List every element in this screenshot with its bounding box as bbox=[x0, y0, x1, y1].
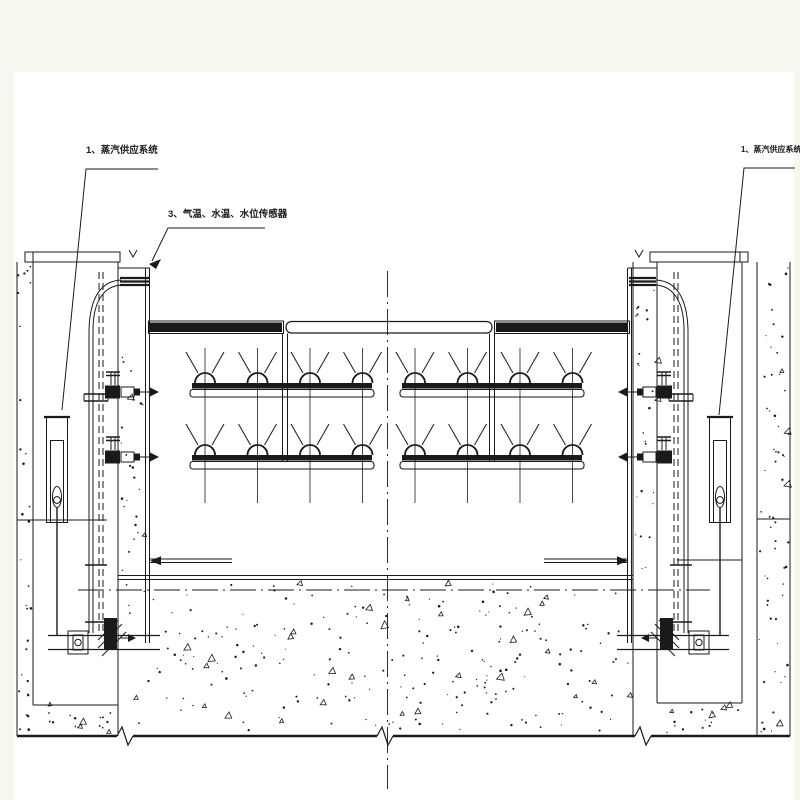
stipple-dot bbox=[766, 408, 768, 410]
stipple-dot bbox=[423, 642, 424, 643]
stipple-dot bbox=[760, 511, 762, 513]
stipple-dot bbox=[126, 500, 127, 501]
steam-pipe bbox=[402, 455, 582, 461]
stipple-dot bbox=[133, 476, 135, 478]
stipple-dot bbox=[27, 640, 29, 642]
stipple-dot bbox=[635, 315, 637, 317]
stipple-dot bbox=[382, 670, 384, 672]
stipple-dot bbox=[295, 696, 297, 698]
stipple-dot bbox=[490, 701, 492, 703]
stipple-dot bbox=[246, 695, 247, 696]
stipple-dot bbox=[486, 675, 487, 676]
stipple-dot bbox=[567, 683, 569, 685]
stipple-dot bbox=[139, 489, 140, 490]
stipple-dot bbox=[559, 653, 561, 655]
stipple-dot bbox=[461, 704, 463, 706]
stipple-dot bbox=[764, 575, 765, 576]
stipple-dot bbox=[402, 655, 404, 657]
stipple-dot bbox=[132, 466, 135, 469]
stipple-dot bbox=[786, 664, 789, 667]
stipple-dot bbox=[499, 625, 501, 627]
stipple-dot bbox=[230, 584, 232, 586]
stipple-dot bbox=[69, 715, 71, 717]
stipple-dot bbox=[192, 705, 194, 707]
stipple-dot bbox=[635, 534, 636, 535]
stipple-dot bbox=[130, 370, 132, 372]
stipple-dot bbox=[122, 570, 123, 571]
stipple-dot bbox=[102, 716, 104, 718]
stipple-dot bbox=[773, 449, 774, 450]
stipple-dot bbox=[48, 712, 50, 714]
stipple-dot bbox=[486, 692, 487, 693]
stipple-dot bbox=[495, 693, 497, 695]
stipple-dot bbox=[19, 448, 21, 450]
stipple-dot bbox=[766, 335, 767, 336]
stipple-dot bbox=[234, 656, 236, 658]
stipple-dot bbox=[776, 352, 778, 354]
stipple-dot bbox=[702, 727, 704, 729]
stipple-dot bbox=[284, 628, 286, 630]
drawing-canvas: 1、蒸汽供应系统 3、气温、水温、水位传感器 1、蒸汽供应系统 bbox=[0, 0, 800, 800]
stipple-dot bbox=[74, 717, 76, 719]
stipple-dot bbox=[26, 605, 27, 606]
stipple-dot bbox=[507, 592, 509, 594]
stipple-dot bbox=[612, 661, 614, 663]
stipple-dot bbox=[774, 671, 775, 672]
stipple-dot bbox=[426, 635, 428, 637]
stipple-dot bbox=[157, 668, 158, 669]
stipple-dot bbox=[782, 454, 784, 456]
stipple-dot bbox=[779, 374, 780, 375]
stipple-dot bbox=[185, 663, 187, 665]
stipple-dot bbox=[514, 661, 516, 663]
stipple-dot bbox=[787, 541, 789, 543]
stipple-dot bbox=[637, 306, 639, 308]
stipple-dot bbox=[775, 451, 777, 453]
stipple-dot bbox=[618, 630, 620, 632]
stipple-dot bbox=[512, 688, 514, 690]
stipple-dot bbox=[391, 659, 393, 661]
stipple-dot bbox=[193, 656, 194, 657]
stipple-dot bbox=[121, 427, 123, 429]
stipple-dot bbox=[505, 691, 507, 693]
stipple-dot bbox=[25, 648, 27, 650]
stipple-dot bbox=[773, 323, 775, 325]
stipple-dot bbox=[778, 426, 779, 427]
stipple-dot bbox=[415, 719, 417, 721]
stipple-dot bbox=[627, 662, 628, 663]
stipple-dot bbox=[559, 663, 562, 666]
stipple-dot bbox=[457, 625, 460, 628]
stipple-dot bbox=[235, 628, 236, 629]
stipple-dot bbox=[782, 595, 783, 596]
stipple-dot bbox=[26, 608, 28, 610]
hose-nut bbox=[134, 454, 140, 461]
stipple-dot bbox=[406, 596, 408, 598]
stipple-dot bbox=[770, 526, 772, 528]
stipple-dot bbox=[132, 399, 134, 401]
stipple-dot bbox=[531, 616, 533, 618]
stipple-dot bbox=[18, 690, 20, 692]
stipple-dot bbox=[256, 624, 258, 626]
stipple-dot bbox=[611, 694, 613, 696]
stipple-dot bbox=[558, 713, 560, 715]
stipple-dot bbox=[521, 719, 523, 721]
stipple-dot bbox=[787, 433, 789, 435]
stipple-dot bbox=[30, 607, 33, 610]
stipple-dot bbox=[406, 697, 408, 699]
stipple-dot bbox=[192, 668, 194, 670]
stipple-dot bbox=[75, 726, 77, 728]
stipple-dot bbox=[385, 615, 387, 617]
label-sensors: 3、气温、水温、水位传感器 bbox=[168, 208, 288, 220]
stipple-dot bbox=[545, 639, 547, 641]
stipple-dot bbox=[524, 676, 525, 677]
stipple-dot bbox=[351, 682, 352, 683]
stipple-dot bbox=[99, 725, 101, 727]
stipple-dot bbox=[27, 694, 29, 696]
stipple-dot bbox=[362, 607, 364, 609]
stipple-dot bbox=[522, 631, 523, 632]
stipple-dot bbox=[509, 612, 511, 614]
stipple-dot bbox=[285, 649, 286, 650]
stipple-dot bbox=[283, 659, 284, 660]
stipple-dot bbox=[485, 614, 486, 615]
stipple-dot bbox=[759, 639, 760, 640]
steam-pipe bbox=[192, 383, 372, 389]
stipple-dot bbox=[412, 687, 414, 689]
stipple-dot bbox=[674, 725, 676, 727]
stipple-dot bbox=[775, 540, 777, 542]
stipple-dot bbox=[516, 657, 518, 659]
stipple-dot bbox=[607, 632, 609, 634]
stipple-dot bbox=[418, 630, 420, 632]
stipple-dot bbox=[437, 659, 439, 661]
stipple-dot bbox=[682, 728, 684, 730]
stipple-dot bbox=[648, 407, 651, 410]
stipple-dot bbox=[454, 627, 455, 628]
stipple-dot bbox=[459, 729, 460, 730]
stipple-dot bbox=[711, 722, 713, 724]
stipple-dot bbox=[328, 628, 330, 630]
stipple-dot bbox=[122, 357, 124, 359]
stipple-dot bbox=[492, 591, 495, 594]
stipple-dot bbox=[636, 496, 637, 497]
stipple-dot bbox=[27, 728, 30, 731]
stipple-dot bbox=[519, 653, 521, 655]
stipple-dot bbox=[243, 692, 245, 694]
stipple-dot bbox=[484, 661, 485, 662]
stipple-dot bbox=[636, 308, 638, 310]
stipple-dot bbox=[770, 284, 772, 286]
stipple-dot bbox=[505, 669, 508, 672]
stipple-dot bbox=[769, 410, 770, 411]
stipple-dot bbox=[516, 607, 517, 608]
stipple-dot bbox=[28, 521, 29, 522]
stipple-dot bbox=[351, 586, 352, 587]
hose-nut bbox=[637, 389, 643, 396]
stipple-dot bbox=[279, 663, 281, 665]
stipple-dot bbox=[653, 290, 654, 291]
stipple-dot bbox=[526, 629, 528, 631]
stipple-dot bbox=[701, 709, 703, 711]
stipple-dot bbox=[348, 652, 350, 654]
stipple-dot bbox=[777, 643, 778, 644]
stipple-dot bbox=[482, 659, 484, 661]
stipple-dot bbox=[354, 697, 355, 698]
stipple-dot bbox=[28, 585, 30, 587]
stipple-dot bbox=[570, 669, 572, 671]
stipple-dot bbox=[429, 599, 430, 600]
stipple-dot bbox=[569, 648, 571, 650]
stipple-dot bbox=[774, 415, 777, 418]
stipple-dot bbox=[329, 658, 331, 660]
stipple-dot bbox=[510, 724, 512, 726]
stipple-dot bbox=[771, 374, 773, 376]
stipple-dot bbox=[615, 658, 617, 660]
label-steam-supply-left: 1、蒸汽供应系统 bbox=[86, 144, 158, 156]
stipple-dot bbox=[585, 628, 587, 630]
stipple-dot bbox=[712, 712, 714, 714]
stipple-dot bbox=[317, 697, 319, 699]
stipple-dot bbox=[242, 651, 244, 653]
stipple-dot bbox=[646, 318, 648, 320]
stipple-dot bbox=[388, 723, 390, 725]
stipple-dot bbox=[221, 671, 223, 673]
stipple-dot bbox=[399, 727, 401, 729]
stipple-dot bbox=[766, 604, 768, 606]
stipple-dot bbox=[492, 584, 493, 585]
stipple-dot bbox=[455, 632, 457, 634]
stipple-dot bbox=[243, 721, 245, 723]
stipple-dot bbox=[339, 637, 341, 639]
stipple-dot bbox=[649, 536, 651, 538]
stipple-dot bbox=[215, 633, 217, 635]
stipple-dot bbox=[102, 727, 104, 729]
stipple-dot bbox=[442, 723, 443, 724]
stipple-dot bbox=[479, 610, 480, 611]
stipple-dot bbox=[20, 559, 21, 560]
stipple-dot bbox=[30, 282, 32, 284]
engineering-drawing: 1、蒸汽供应系统 3、气温、水温、水位传感器 1、蒸汽供应系统 bbox=[0, 0, 800, 800]
stipple-dot bbox=[21, 513, 24, 516]
stipple-dot bbox=[23, 272, 25, 274]
hose-nut bbox=[134, 389, 140, 396]
stipple-dot bbox=[194, 637, 196, 639]
stipple-dot bbox=[437, 655, 438, 656]
stipple-dot bbox=[331, 723, 333, 725]
stipple-dot bbox=[780, 682, 781, 683]
stipple-dot bbox=[339, 648, 341, 650]
stipple-dot bbox=[775, 461, 777, 463]
stipple-dot bbox=[641, 568, 642, 569]
stipple-dot bbox=[147, 680, 149, 682]
stipple-dot bbox=[615, 592, 617, 594]
stipple-dot bbox=[19, 728, 21, 730]
stipple-dot bbox=[486, 713, 488, 715]
stipple-dot bbox=[254, 625, 256, 627]
stipple-dot bbox=[106, 721, 108, 723]
stipple-dot bbox=[109, 712, 111, 714]
stipple-dot bbox=[580, 650, 582, 652]
stipple-dot bbox=[784, 390, 786, 392]
stipple-dot bbox=[242, 614, 243, 615]
stipple-dot bbox=[375, 725, 376, 726]
stipple-dot bbox=[447, 694, 448, 695]
stipple-dot bbox=[540, 726, 542, 728]
stipple-dot bbox=[530, 586, 532, 588]
stipple-dot bbox=[19, 326, 21, 328]
stipple-dot bbox=[255, 664, 257, 666]
stipple-dot bbox=[637, 363, 639, 365]
stipple-dot bbox=[438, 605, 441, 608]
stipple-dot bbox=[345, 696, 347, 698]
stipple-dot bbox=[777, 451, 779, 453]
stipple-dot bbox=[652, 390, 654, 392]
stipple-dot bbox=[781, 479, 783, 481]
stipple-dot bbox=[180, 659, 182, 661]
stipple-dot bbox=[484, 686, 486, 688]
stipple-dot bbox=[645, 443, 647, 445]
stipple-dot bbox=[760, 731, 761, 732]
stipple-dot bbox=[327, 683, 329, 685]
stipple-dot bbox=[562, 713, 563, 714]
stipple-dot bbox=[180, 709, 182, 711]
hose-nut bbox=[105, 386, 120, 399]
stipple-dot bbox=[601, 711, 603, 713]
hose-nut bbox=[105, 451, 120, 464]
stipple-dot bbox=[488, 612, 489, 613]
stipple-dot bbox=[21, 674, 22, 675]
stipple-dot bbox=[424, 683, 426, 685]
stipple-dot bbox=[784, 456, 785, 457]
stipple-dot bbox=[638, 353, 640, 355]
stipple-dot bbox=[499, 605, 501, 607]
stipple-dot bbox=[525, 722, 527, 724]
stipple-dot bbox=[771, 309, 773, 311]
stipple-dot bbox=[311, 595, 313, 597]
stipple-dot bbox=[464, 691, 466, 693]
stipple-dot bbox=[442, 601, 444, 603]
stipple-dot bbox=[764, 470, 765, 471]
stipple-dot bbox=[539, 623, 541, 625]
stipple-dot bbox=[126, 584, 128, 586]
stipple-dot bbox=[366, 622, 368, 624]
stipple-dot bbox=[252, 690, 254, 692]
stipple-dot bbox=[456, 696, 458, 698]
stipple-dot bbox=[369, 689, 370, 690]
stipple-dot bbox=[610, 719, 611, 720]
stipple-dot bbox=[248, 729, 250, 731]
stipple-dot bbox=[263, 656, 265, 658]
stipple-dot bbox=[128, 551, 130, 553]
stipple-dot bbox=[129, 612, 131, 614]
stipple-dot bbox=[123, 506, 125, 508]
stipple-dot bbox=[574, 594, 575, 595]
stipple-dot bbox=[99, 717, 101, 719]
stipple-dot bbox=[240, 667, 242, 669]
stipple-dot bbox=[165, 631, 167, 633]
stipple-dot bbox=[785, 273, 788, 276]
stipple-dot bbox=[787, 267, 788, 268]
stipple-dot bbox=[392, 722, 393, 723]
stipple-dot bbox=[759, 550, 761, 552]
stipple-dot bbox=[637, 313, 639, 315]
stipple-dot bbox=[498, 641, 500, 643]
stipple-dot bbox=[133, 538, 135, 540]
stipple-dot bbox=[653, 492, 654, 493]
stipple-dot bbox=[183, 655, 184, 656]
stipple-dot bbox=[456, 712, 458, 714]
stipple-dot bbox=[769, 516, 771, 518]
stipple-dot bbox=[587, 624, 589, 626]
stipple-dot bbox=[121, 442, 122, 443]
paper-sheet bbox=[14, 72, 794, 800]
stipple-dot bbox=[581, 701, 583, 703]
stipple-dot bbox=[348, 699, 350, 701]
stipple-dot bbox=[476, 685, 478, 687]
stipple-dot bbox=[273, 585, 275, 587]
stipple-dot bbox=[774, 521, 776, 523]
stipple-dot bbox=[767, 578, 769, 580]
stipple-dot bbox=[640, 490, 642, 492]
steam-pipe bbox=[402, 383, 582, 389]
stipple-dot bbox=[211, 684, 213, 686]
stipple-dot bbox=[645, 567, 646, 568]
stipple-dot bbox=[432, 672, 434, 674]
stipple-dot bbox=[495, 698, 497, 700]
stipple-dot bbox=[673, 721, 675, 723]
stipple-dot bbox=[261, 653, 262, 654]
stipple-dot bbox=[540, 638, 542, 640]
stipple-dot bbox=[186, 594, 187, 595]
stipple-dot bbox=[600, 643, 602, 645]
stipple-dot bbox=[153, 599, 154, 600]
stipple-dot bbox=[645, 441, 646, 442]
stipple-dot bbox=[599, 730, 601, 732]
stipple-dot bbox=[179, 633, 180, 634]
stipple-dot bbox=[278, 717, 279, 718]
stipple-dot bbox=[421, 657, 423, 659]
stipple-dot bbox=[275, 635, 276, 636]
stipple-dot bbox=[582, 624, 584, 626]
stipple-dot bbox=[293, 603, 294, 604]
stipple-dot bbox=[449, 629, 451, 631]
stipple-dot bbox=[409, 604, 410, 605]
stipple-dot bbox=[52, 721, 54, 723]
stipple-dot bbox=[297, 700, 299, 702]
stipple-dot bbox=[201, 630, 203, 632]
stipple-dot bbox=[25, 453, 26, 454]
stipple-dot bbox=[774, 548, 776, 550]
stipple-dot bbox=[167, 647, 169, 649]
stipple-dot bbox=[404, 674, 406, 676]
stipple-dot bbox=[784, 676, 785, 677]
stipple-dot bbox=[500, 638, 501, 639]
stipple-dot bbox=[26, 714, 28, 716]
stipple-dot bbox=[49, 721, 51, 723]
stipple-dot bbox=[705, 720, 706, 721]
stipple-dot bbox=[159, 671, 161, 673]
stipple-dot bbox=[121, 497, 124, 500]
hose-nut bbox=[657, 451, 672, 464]
stipple-dot bbox=[400, 686, 401, 687]
header-left-black bbox=[150, 323, 282, 333]
stipple-dot bbox=[640, 535, 642, 537]
stipple-dot bbox=[589, 680, 591, 682]
hose-nut bbox=[637, 454, 643, 461]
stipple-dot bbox=[135, 516, 137, 518]
